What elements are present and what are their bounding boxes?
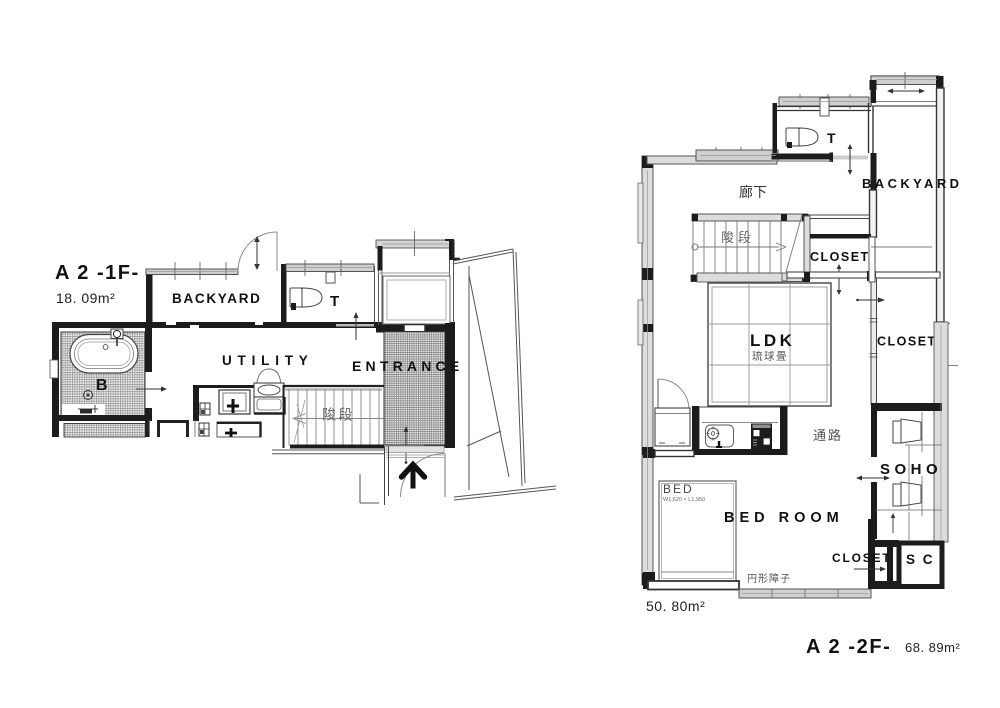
svg-text:18. 09m²: 18. 09m² xyxy=(56,290,115,306)
svg-text:BACKYARD: BACKYARD xyxy=(862,176,962,191)
svg-text:CLOSET: CLOSET xyxy=(832,551,891,565)
svg-text:CLOSET: CLOSET xyxy=(810,250,870,264)
svg-text:A 2 -2F-: A 2 -2F- xyxy=(806,636,891,658)
svg-text:50. 80m²: 50. 80m² xyxy=(646,598,705,614)
svg-text:SOHO: SOHO xyxy=(880,461,942,478)
svg-text:B: B xyxy=(96,377,108,394)
svg-text:琉球畳: 琉球畳 xyxy=(752,350,788,363)
svg-text:T: T xyxy=(827,130,836,146)
svg-text:CLOSET: CLOSET xyxy=(877,335,937,349)
svg-text:A 2 -1F-: A 2 -1F- xyxy=(55,262,140,284)
svg-text:S C: S C xyxy=(906,552,935,567)
svg-text:W1,620 × L1,950: W1,620 × L1,950 xyxy=(663,497,705,503)
svg-text:BACKYARD: BACKYARD xyxy=(172,291,262,306)
svg-text:BED: BED xyxy=(663,482,694,496)
svg-text:BED ROOM: BED ROOM xyxy=(724,510,844,526)
svg-text:LDK: LDK xyxy=(750,331,795,350)
svg-text:68. 89m²: 68. 89m² xyxy=(905,640,960,655)
svg-text:円形障子: 円形障子 xyxy=(747,572,791,585)
svg-text:T: T xyxy=(330,293,339,310)
svg-text:廊下: 廊下 xyxy=(739,184,767,200)
svg-text:UTILITY: UTILITY xyxy=(222,353,314,368)
svg-text:通路: 通路 xyxy=(813,428,843,443)
svg-text:陖段: 陖段 xyxy=(322,407,355,423)
svg-text:陖段: 陖段 xyxy=(721,230,755,245)
svg-text:ENTRANCE: ENTRANCE xyxy=(352,358,463,374)
